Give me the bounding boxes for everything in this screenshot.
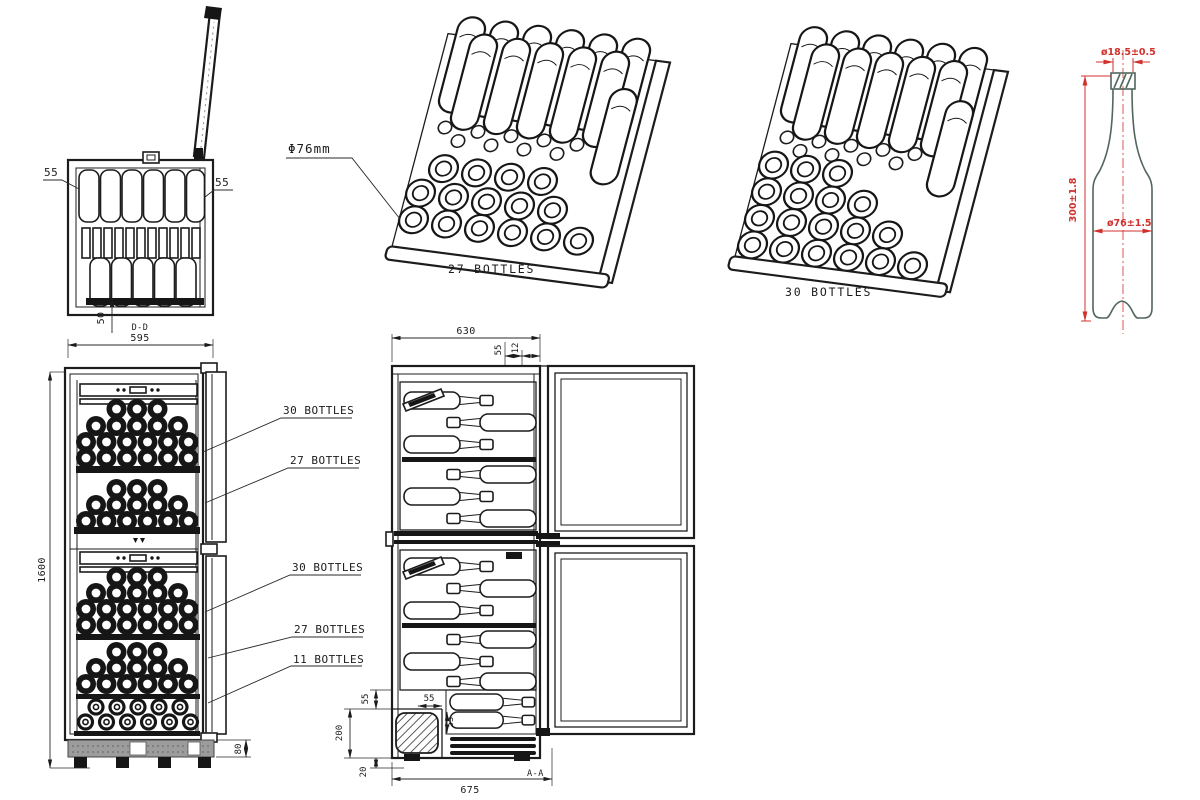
dim-side-left-top: 55: [361, 694, 371, 705]
section-label-dd: D-D: [132, 323, 149, 333]
dim-top-left: 55: [44, 166, 58, 179]
lid-latch: [143, 152, 159, 163]
phi-callout: Φ76mm: [286, 141, 400, 219]
dim-front-width: 595: [130, 333, 149, 344]
callout-11-bottles: 11 BOTTLES: [293, 653, 364, 666]
drawing-canvas: 55 55 50 D-D 595: [0, 0, 1200, 800]
iso-27-caption: 27 BOTTLES: [448, 262, 535, 276]
iso-30-caption: 30 BOTTLES: [785, 285, 872, 299]
callout-27-bottles-lower: 27 BOTTLES: [294, 623, 365, 636]
callout-30-bottles-upper: 30 BOTTLES: [283, 404, 354, 417]
iso-view-30: 30 BOTTLES: [728, 24, 1014, 299]
dim-step-v: 55: [446, 717, 456, 728]
dim-side-depth: 630: [456, 326, 475, 337]
wine-bottle-outline: [1093, 73, 1152, 318]
upper-control-panel: [80, 384, 197, 396]
iso-view-27: 27 BOTTLES: [385, 14, 676, 288]
dim-body-diameter: ø76±1.5: [1107, 218, 1152, 229]
compressor: [396, 713, 438, 753]
dim-front-base: 80: [234, 744, 244, 755]
front-callouts: 30 BOTTLES 27 BOTTLES 30 BOTTLES 27 BOTT…: [203, 404, 365, 703]
top-view-rail: [86, 298, 204, 305]
top-view-dd: 55 55 50 D-D: [43, 6, 233, 333]
callout-27-bottles-upper: 27 BOTTLES: [290, 454, 361, 467]
dim-top-bottom: 50: [96, 312, 107, 325]
front-door-edge: [201, 363, 226, 742]
open-lid: [194, 6, 222, 159]
side-view-aa: 630 55 12: [335, 326, 694, 796]
dim-side-left-bottom: 20: [359, 767, 369, 778]
top-view-necks: [82, 228, 200, 258]
phi-label: Φ76mm: [288, 141, 331, 156]
dim-step-h: 55: [424, 694, 435, 704]
callout-30-bottles-lower: 30 BOTTLES: [292, 561, 363, 574]
technical-drawing: 55 55 50 D-D 595: [0, 0, 1200, 800]
lower-control-panel: [80, 552, 197, 564]
dim-bottle-height: 300±1.8: [1068, 177, 1079, 222]
top-view-bottles-upper: [79, 170, 205, 222]
dim-side-top-b: 12: [511, 343, 521, 354]
dim-front-height: 1600: [37, 557, 48, 583]
side-open-doors: [536, 366, 694, 736]
dim-neck-diameter: ø18.5±0.5: [1101, 47, 1156, 58]
cabinet-base: [68, 740, 214, 768]
bottle-spec: ø18.5±0.5 300±1.8 ø76±1.5: [1068, 47, 1156, 334]
front-view: 595: [37, 333, 365, 768]
dim-top-right: 55: [215, 176, 229, 189]
section-label-aa: A-A: [527, 769, 544, 779]
dim-side-left-mid: 200: [335, 725, 345, 741]
dim-side-bottom: 675: [460, 785, 479, 796]
dim-side-top-a: 55: [494, 345, 504, 356]
